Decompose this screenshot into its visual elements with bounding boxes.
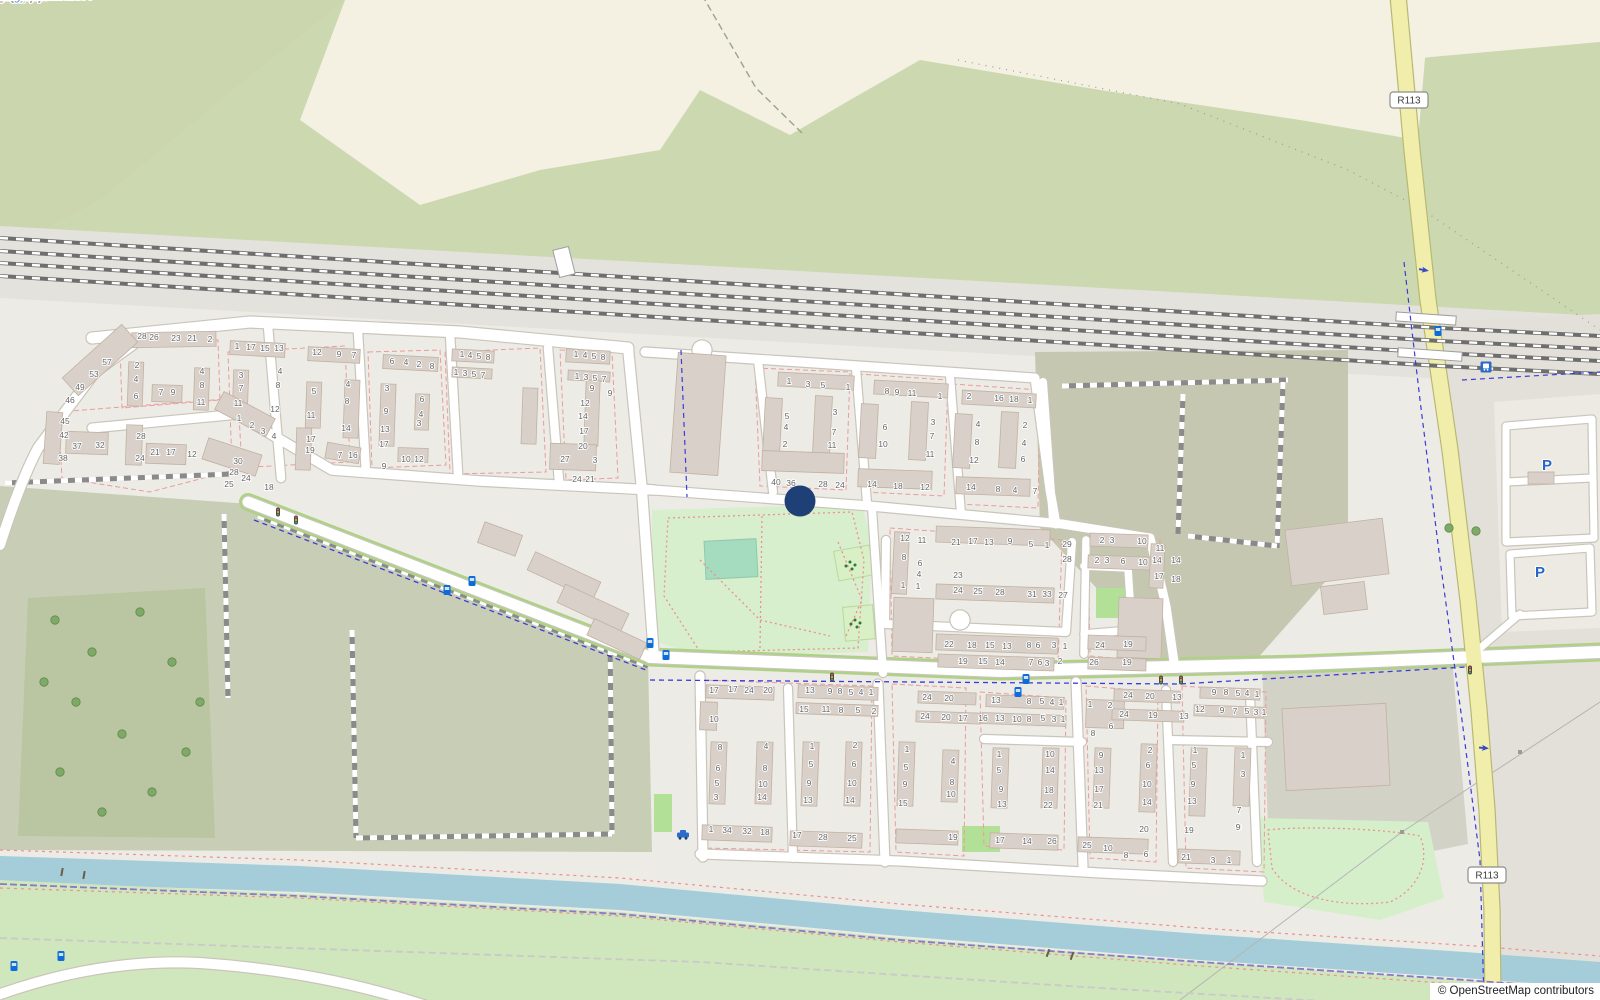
building (670, 352, 726, 475)
house-number: 15 (260, 343, 270, 353)
attribution[interactable]: © OpenStreetMap contributors (1430, 983, 1600, 1000)
house-number: 10 (709, 714, 719, 724)
house-number: 21 (585, 474, 595, 484)
house-number: 7 (1233, 706, 1238, 716)
house-number: 7 (481, 370, 486, 380)
playground-icon (850, 623, 853, 626)
house-number: 6 (1121, 556, 1126, 566)
house-number: 18 (264, 482, 274, 492)
house-number: 3 (714, 792, 719, 802)
house-number: 8 (838, 686, 843, 696)
house-number: 4 (468, 350, 473, 360)
house-number: 5 (821, 380, 826, 390)
route-shield: R113 (1468, 867, 1506, 883)
house-number: 8 (486, 352, 491, 362)
house-number: 6 (1146, 760, 1151, 770)
building (1320, 581, 1367, 614)
house-number: 8 (839, 705, 844, 715)
house-number: 11 (822, 704, 831, 714)
building (550, 443, 597, 471)
house-number: 13 (1002, 641, 1012, 651)
house-number: 14 (1142, 797, 1152, 807)
house-number: 1 (1061, 714, 1066, 724)
house-number: 21 (150, 447, 160, 457)
house-number: 9 (1008, 536, 1013, 546)
landuse-area (654, 794, 672, 832)
house-number: 24 (572, 474, 582, 484)
house-number: 1 (237, 413, 242, 423)
house-number: 1 (1241, 750, 1246, 760)
house-number: 4 (1022, 438, 1027, 448)
house-number: 13 (274, 343, 284, 353)
house-number: 5 (809, 759, 814, 769)
tree-icon (51, 616, 59, 624)
house-number: 6 (918, 558, 923, 568)
house-number: 1 (1227, 855, 1232, 865)
house-number: 18 (967, 640, 977, 650)
house-number: 20 (578, 441, 588, 451)
house-number: 1 (1045, 540, 1050, 550)
house-number: 2 (872, 706, 877, 716)
house-number: 20 (1139, 824, 1149, 834)
landuse-area (704, 539, 758, 580)
house-number: 26 (149, 332, 159, 342)
house-number: 2 (783, 439, 788, 449)
traffic-signal-icon (276, 508, 280, 517)
house-number: 24 (241, 473, 251, 483)
house-number: 16 (978, 713, 988, 723)
house-number: 4 (1050, 697, 1055, 707)
house-number: 19 (305, 445, 315, 455)
bus-stop-icon (647, 638, 654, 648)
house-number: 29 (1062, 539, 1072, 549)
house-number: 1 (916, 581, 921, 591)
house-number: 7 (159, 387, 164, 397)
house-number: 11 (1156, 543, 1165, 553)
house-number: 13 (991, 695, 1001, 705)
house-number: 12 (920, 482, 930, 492)
house-number: 6 (852, 759, 857, 769)
bus-stop-icon (469, 576, 476, 586)
house-number: 11 (828, 440, 837, 450)
tree-icon (182, 748, 190, 756)
house-number: 10 (878, 439, 888, 449)
house-number: 2 (1095, 555, 1100, 565)
house-number: 11 (926, 449, 935, 459)
house-number: 8 (763, 763, 768, 773)
house-number: 24 (922, 692, 932, 702)
house-number: 1 (1262, 707, 1267, 717)
house-number: 25 (224, 479, 234, 489)
house-number: 25 (1082, 840, 1092, 850)
tree-icon (196, 698, 204, 706)
house-number: 20 (1145, 691, 1155, 701)
house-number: 8 (718, 742, 723, 752)
house-number: 11 (918, 535, 927, 545)
house-number: 1 (905, 744, 910, 754)
tree-icon (136, 608, 144, 616)
house-number: 5 (904, 762, 909, 772)
house-number: 9 (903, 779, 908, 789)
house-number: 17 (995, 835, 1005, 845)
building (859, 404, 879, 459)
house-number: 19 (1148, 710, 1158, 720)
house-number: 8 (601, 352, 606, 362)
house-number: 23 (171, 333, 181, 343)
map-viewport[interactable]: PP 2826232121171513129764281458135714581… (0, 0, 1600, 1000)
railway-station-icon (1481, 362, 1492, 373)
house-number: 17 (728, 684, 738, 694)
house-number: 10 (401, 454, 411, 464)
house-number: 24 (953, 585, 963, 595)
house-number: 19 (958, 656, 968, 666)
house-number: 5 (312, 386, 317, 396)
house-number: 17 (246, 342, 256, 352)
house-number: 17 (1154, 571, 1164, 581)
house-number: 15 (799, 704, 809, 714)
house-number: 2 (1108, 700, 1113, 710)
house-number: 7 (239, 383, 244, 393)
building (1200, 687, 1260, 700)
playground-icon (849, 561, 852, 564)
house-number: 1 (787, 376, 792, 386)
house-number: 8 (1124, 850, 1129, 860)
house-number: 19 (1123, 639, 1133, 649)
house-number: 9 (608, 388, 613, 398)
house-number: 5 (1029, 539, 1034, 549)
house-number: 14 (757, 792, 767, 802)
house-number: 14 (995, 657, 1005, 667)
house-number: 28 (137, 331, 147, 341)
tree-icon (88, 648, 96, 656)
house-number: 8 (885, 386, 890, 396)
house-number: 14 (1171, 555, 1181, 565)
house-number: 3 (1052, 714, 1057, 724)
house-number: 21 (1093, 800, 1103, 810)
house-number: 1 (709, 824, 714, 834)
pylon-icon (1400, 830, 1404, 834)
house-number: 1 (1028, 395, 1033, 405)
house-number: 28 (818, 832, 828, 842)
house-number: 27 (560, 454, 570, 464)
house-number: 8 (950, 777, 955, 787)
house-number: 18 (1171, 574, 1181, 584)
house-number: 5 (1040, 696, 1045, 706)
house-number: 7 (1237, 805, 1242, 815)
house-number: 3 (417, 418, 422, 428)
house-number: 2 (417, 359, 422, 369)
house-number: 7 (338, 450, 343, 460)
house-number: 15 (898, 798, 908, 808)
house-number: 5 (715, 778, 720, 788)
house-number: 1 (810, 741, 815, 751)
house-number: 18 (1044, 785, 1054, 795)
house-number: 2 (853, 740, 858, 750)
house-number: 19 (1184, 825, 1194, 835)
tree-icon (118, 730, 126, 738)
house-number: 24 (920, 711, 930, 721)
building (1285, 518, 1389, 586)
tree-icon (148, 788, 156, 796)
house-number: 17 (958, 713, 968, 723)
house-number: 34 (722, 825, 732, 835)
house-number: 12 (900, 533, 910, 543)
playground-icon (845, 565, 848, 568)
house-number: 7 (602, 374, 607, 384)
house-number: 8 (996, 484, 1001, 494)
house-number: 14 (1045, 765, 1055, 775)
house-number: 4 (859, 687, 864, 697)
building (999, 412, 1019, 469)
house-number: 4 (764, 741, 769, 751)
house-number: 13 (1179, 711, 1189, 721)
building (892, 597, 934, 652)
house-number: 5 (1245, 706, 1250, 716)
house-number: 22 (944, 639, 954, 649)
bus-stop-icon (444, 585, 451, 595)
house-number: 9 (1220, 705, 1225, 715)
house-number: 10 (1142, 779, 1152, 789)
bus-stop-icon (663, 650, 670, 660)
house-number: 5 (997, 765, 1002, 775)
house-number: 13 (380, 424, 390, 434)
transit-label: Go Car (0, 0, 19, 3)
house-number: 24 (135, 453, 145, 463)
route-shield: R113 (1390, 92, 1428, 108)
house-number: 3 (806, 379, 811, 389)
house-number: 57 (102, 357, 112, 367)
house-number: 24 (1095, 640, 1105, 650)
house-number: 3 (1254, 707, 1259, 717)
house-number: 3 (584, 372, 589, 382)
house-number: 17 (968, 536, 978, 546)
house-number: 6 (420, 394, 425, 404)
house-number: 53 (89, 369, 99, 379)
house-number: 1 (1059, 697, 1064, 707)
house-number: 13 (1094, 765, 1104, 775)
house-number: 20 (763, 685, 773, 695)
house-number: 14 (867, 479, 877, 489)
house-number: 3 (463, 368, 468, 378)
house-number: 8 (430, 361, 435, 371)
house-number: 1 (460, 349, 465, 359)
pylon-icon (1518, 750, 1522, 754)
house-number: 10 (758, 779, 768, 789)
landuse-area (1258, 818, 1444, 920)
house-number: 30 (233, 456, 243, 466)
svg-text:R113: R113 (1397, 96, 1421, 107)
house-number: 6 (1036, 640, 1041, 650)
house-number: 13 (995, 713, 1005, 723)
house-number: 3 (239, 370, 244, 380)
house-number: 46 (65, 395, 75, 405)
house-number: 11 (197, 397, 206, 407)
house-number: 9 (590, 383, 595, 393)
house-number: 24 (744, 685, 754, 695)
bus-stop-icon (58, 951, 65, 961)
house-number: 11 (307, 410, 316, 420)
house-number: 3 (1211, 855, 1216, 865)
house-number: 8 (1091, 728, 1096, 738)
house-number: 17 (1094, 784, 1104, 794)
house-number: 31 (1027, 589, 1037, 599)
house-number: 38 (58, 453, 68, 463)
house-number: 28 (1062, 554, 1072, 564)
tree-icon (56, 768, 64, 776)
house-number: 6 (1109, 721, 1114, 731)
house-number: 10 (1045, 749, 1055, 759)
house-number: 11 (234, 398, 243, 408)
house-number: 20 (944, 693, 954, 703)
location-marker[interactable] (785, 486, 816, 517)
tree-icon (72, 698, 80, 706)
house-number: 8 (1224, 687, 1229, 697)
building (152, 384, 183, 402)
current-location-marker (785, 486, 816, 517)
house-number: 2 (1148, 745, 1153, 755)
house-number: 13 (997, 799, 1007, 809)
parking-icon: P (1542, 457, 1552, 474)
tree-icon (168, 658, 176, 666)
house-number: 45 (60, 416, 70, 426)
house-number: 13 (803, 795, 813, 805)
building (1282, 703, 1390, 790)
house-number: 32 (95, 440, 105, 450)
house-number: 4 (1245, 688, 1250, 698)
road (1170, 740, 1268, 742)
house-number: 6 (1021, 454, 1026, 464)
tree-icon (98, 808, 106, 816)
house-number: 16 (348, 450, 358, 460)
house-number: 10 (1103, 843, 1113, 853)
house-number: 12 (580, 398, 590, 408)
playground-icon (854, 619, 857, 622)
house-number: 4 (134, 374, 139, 384)
house-number: 9 (171, 387, 176, 397)
house-number: 13 (984, 537, 994, 547)
house-number: 21 (951, 537, 961, 547)
house-number: 5 (856, 705, 861, 715)
house-number: 4 (200, 366, 205, 376)
house-number: 1 (869, 687, 874, 697)
house-number: 5 (1192, 760, 1197, 770)
house-number: 3 (261, 426, 266, 436)
house-number: 4 (346, 379, 351, 389)
house-number: 12 (187, 449, 197, 459)
house-number: 20 (941, 712, 951, 722)
house-number: 8 (1027, 640, 1032, 650)
bus-stop-icon (1023, 674, 1030, 684)
house-number: 3 (1110, 535, 1115, 545)
house-number: 14 (1152, 555, 1162, 565)
house-number: 21 (187, 333, 197, 343)
house-number: 7 (352, 350, 357, 360)
svg-text:R113: R113 (1475, 871, 1499, 882)
house-number: 1 (1063, 641, 1068, 651)
house-number: 15 (985, 640, 995, 650)
house-number: 13 (805, 685, 815, 695)
house-number: 13 (1187, 796, 1197, 806)
landuse-area (18, 588, 215, 838)
house-number: 24 (1119, 709, 1129, 719)
house-number: 10 (1138, 557, 1148, 567)
house-number: 3 (931, 417, 936, 427)
house-number: 17 (579, 426, 589, 436)
house-number: 1 (235, 341, 240, 351)
traffic-signal-icon (294, 516, 298, 525)
house-number: 33 (1042, 589, 1052, 599)
house-number: 18 (760, 827, 770, 837)
bus-stop-icon (1015, 687, 1022, 697)
house-number: 2 (1100, 535, 1105, 545)
house-number: 6 (390, 356, 395, 366)
house-number: 1 (574, 349, 579, 359)
house-number: 5 (593, 373, 598, 383)
house-number: 14 (1022, 836, 1032, 846)
house-number: 19 (948, 832, 958, 842)
house-number: 6 (1038, 657, 1043, 667)
bus-stop-icon (1435, 326, 1442, 336)
house-number: 2 (1058, 656, 1063, 666)
traffic-signal-icon (1468, 666, 1472, 675)
house-number: 8 (345, 396, 350, 406)
house-number: 22 (1043, 800, 1053, 810)
house-number: 17 (379, 439, 389, 449)
building (763, 398, 783, 455)
house-number: 8 (200, 380, 205, 390)
house-number: 8 (276, 380, 281, 390)
house-number: 1 (938, 391, 943, 401)
house-number: 7 (1029, 657, 1034, 667)
house-number: 3 (1105, 555, 1110, 565)
house-number: 10 (847, 778, 857, 788)
house-number: 5 (472, 369, 477, 379)
house-number: 6 (1144, 849, 1149, 859)
house-number: 4 (583, 350, 588, 360)
house-number: 23 (953, 570, 963, 580)
house-number: 9 (1212, 687, 1217, 697)
house-number: 2 (1023, 420, 1028, 430)
house-number: 2 (967, 391, 972, 401)
house-number: 24 (835, 480, 845, 490)
house-number: 5 (592, 351, 597, 361)
house-number: 9 (828, 686, 833, 696)
house-number: 24 (1123, 690, 1133, 700)
house-number: 1 (454, 367, 459, 377)
house-number: 5 (477, 351, 482, 361)
house-number: 8 (1027, 714, 1032, 724)
house-number: 28 (136, 431, 146, 441)
house-number: 26 (1089, 657, 1099, 667)
playground-icon (854, 564, 857, 567)
map-canvas[interactable]: PP 2826232121171513129764281458135714581… (0, 0, 1600, 1000)
house-number: 17 (709, 685, 719, 695)
house-number: 26 (1047, 836, 1057, 846)
house-number: 28 (818, 479, 828, 489)
house-number: 4 (951, 756, 956, 766)
building (762, 451, 845, 474)
house-number: 3 (385, 383, 390, 393)
building (521, 388, 538, 444)
house-number: 9 (1099, 750, 1104, 760)
house-number: 6 (134, 391, 139, 401)
house-number: 28 (229, 467, 239, 477)
house-number: 21 (1181, 852, 1191, 862)
road (984, 739, 1082, 742)
house-number: 15 (978, 656, 988, 666)
house-number: 7 (832, 427, 837, 437)
house-number: 12 (1195, 704, 1205, 714)
